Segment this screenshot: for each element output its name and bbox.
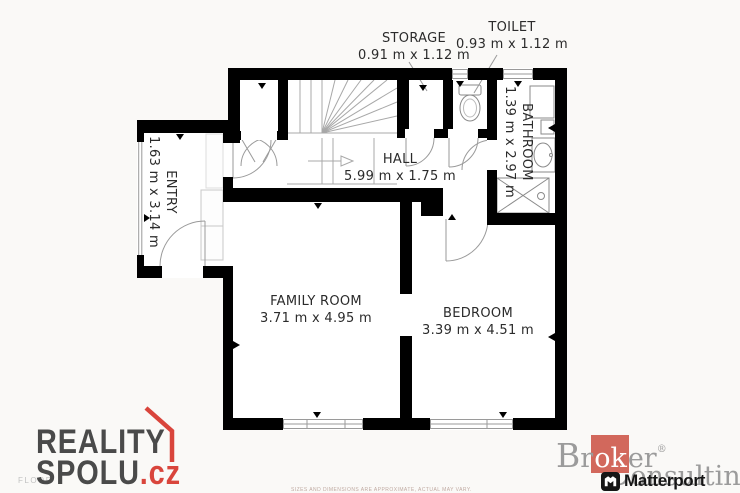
registered-mark: ®	[657, 444, 667, 455]
room-dims: 5.99 m x 1.75 m	[344, 168, 456, 185]
room-name: BATHROOM	[518, 86, 535, 198]
room-label-hall: HALL 5.99 m x 1.75 m	[344, 151, 456, 185]
broker-highlight-square: ok	[593, 443, 628, 474]
broker-word: Broker®	[556, 436, 740, 473]
room-dims: 3.39 m x 4.51 m	[422, 322, 534, 339]
room-label-toilet: TOILET 0.93 m x 1.12 m	[456, 19, 568, 53]
room-label-entry: ENTRY 1.63 m x 3.14 m	[145, 136, 179, 248]
room-dims: 1.63 m x 3.14 m	[145, 136, 162, 248]
reality-spolu-logo: REALITY SPOLU.cz	[36, 427, 181, 489]
room-name: TOILET	[456, 19, 568, 36]
matterport-cube-icon	[601, 472, 620, 491]
matterport-label: Matterport	[624, 471, 705, 491]
reality-spolu-line2: SPOLU.cz	[36, 458, 181, 489]
room-label-bedroom: BEDROOM 3.39 m x 4.51 m	[422, 305, 534, 339]
room-dims: 3.71 m x 4.95 m	[260, 310, 372, 327]
room-label-bathroom: BATHROOM 1.39 m x 2.97 m	[501, 86, 535, 198]
disclaimer-text: SIZES AND DIMENSIONS ARE APPROXIMATE, AC…	[291, 487, 472, 493]
room-label-storage: STORAGE 0.91 m x 1.12 m	[358, 30, 470, 64]
toilet-fixture	[459, 85, 481, 121]
room-name: STORAGE	[358, 30, 470, 47]
room-name: FAMILY ROOM	[260, 293, 372, 310]
room-name: ENTRY	[162, 136, 179, 248]
matterport-logo: Matterport	[601, 471, 705, 491]
room-label-family-room: FAMILY ROOM 3.71 m x 4.95 m	[260, 293, 372, 327]
floor-plan-drawing	[0, 0, 740, 493]
reality-spolu-tld: .cz	[140, 454, 181, 492]
room-name: BEDROOM	[422, 305, 534, 322]
room-dims: 1.39 m x 2.97 m	[501, 86, 518, 198]
room-dims: 0.91 m x 1.12 m	[358, 47, 470, 64]
floor-plan-screenshot: ENTRY 1.63 m x 3.14 m HALL 5.99 m x 1.75…	[0, 0, 740, 493]
room-name: HALL	[344, 151, 456, 168]
room-dims: 0.93 m x 1.12 m	[456, 36, 568, 53]
